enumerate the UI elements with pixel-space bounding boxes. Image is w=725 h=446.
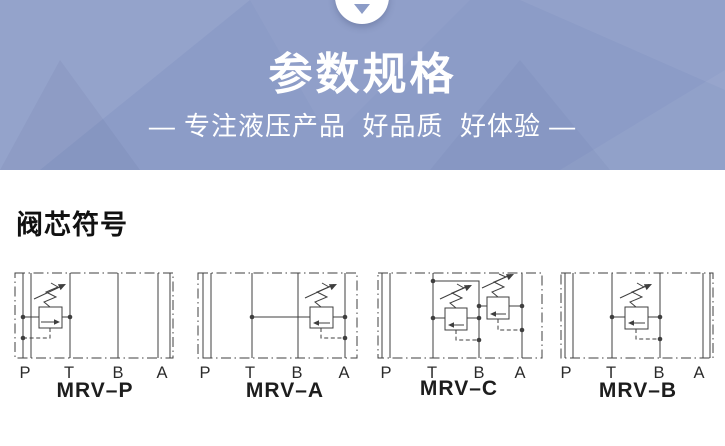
mrv-c-schematic: P T B A MRV–C <box>372 268 544 408</box>
port-label: P <box>560 364 571 382</box>
port-label: P <box>19 364 30 382</box>
diagram-caption: MRV–B <box>599 379 677 402</box>
valve-symbol-mrv-b: P T B A MRV–B <box>552 268 724 408</box>
banner-title: 参数规格 <box>0 38 725 102</box>
port-label: P <box>380 364 391 382</box>
port-label: A <box>338 364 349 382</box>
section-heading: 阀芯符号 <box>16 203 128 242</box>
mrv-a-schematic: P T B A MRV–A <box>192 268 364 408</box>
port-label: A <box>514 364 525 382</box>
port-label: P <box>199 364 210 382</box>
spec-banner: 参数规格 — 专注液压产品 好品质 好体验 — <box>0 0 725 170</box>
diagram-caption: MRV–A <box>246 379 324 402</box>
valve-symbol-mrv-c: P T B A MRV–C <box>372 268 544 408</box>
chevron-down-icon <box>354 4 370 14</box>
port-label: A <box>693 364 704 382</box>
diagram-caption: MRV–P <box>57 379 134 402</box>
valve-symbol-mrv-p: P T B A MRV–P <box>10 268 182 408</box>
diagram-caption: MRV–C <box>420 377 498 400</box>
banner-subtitle: — 专注液压产品 好品质 好体验 — <box>0 106 725 143</box>
product-spec-section: 参数规格 — 专注液压产品 好品质 好体验 — 阀芯符号 P T B A MRV… <box>0 0 725 446</box>
mrv-b-schematic: P T B A MRV–B <box>552 268 724 408</box>
mrv-p-schematic: P T B A MRV–P <box>10 268 182 408</box>
port-label: A <box>156 364 167 382</box>
valve-symbol-mrv-a: P T B A MRV–A <box>192 268 364 408</box>
